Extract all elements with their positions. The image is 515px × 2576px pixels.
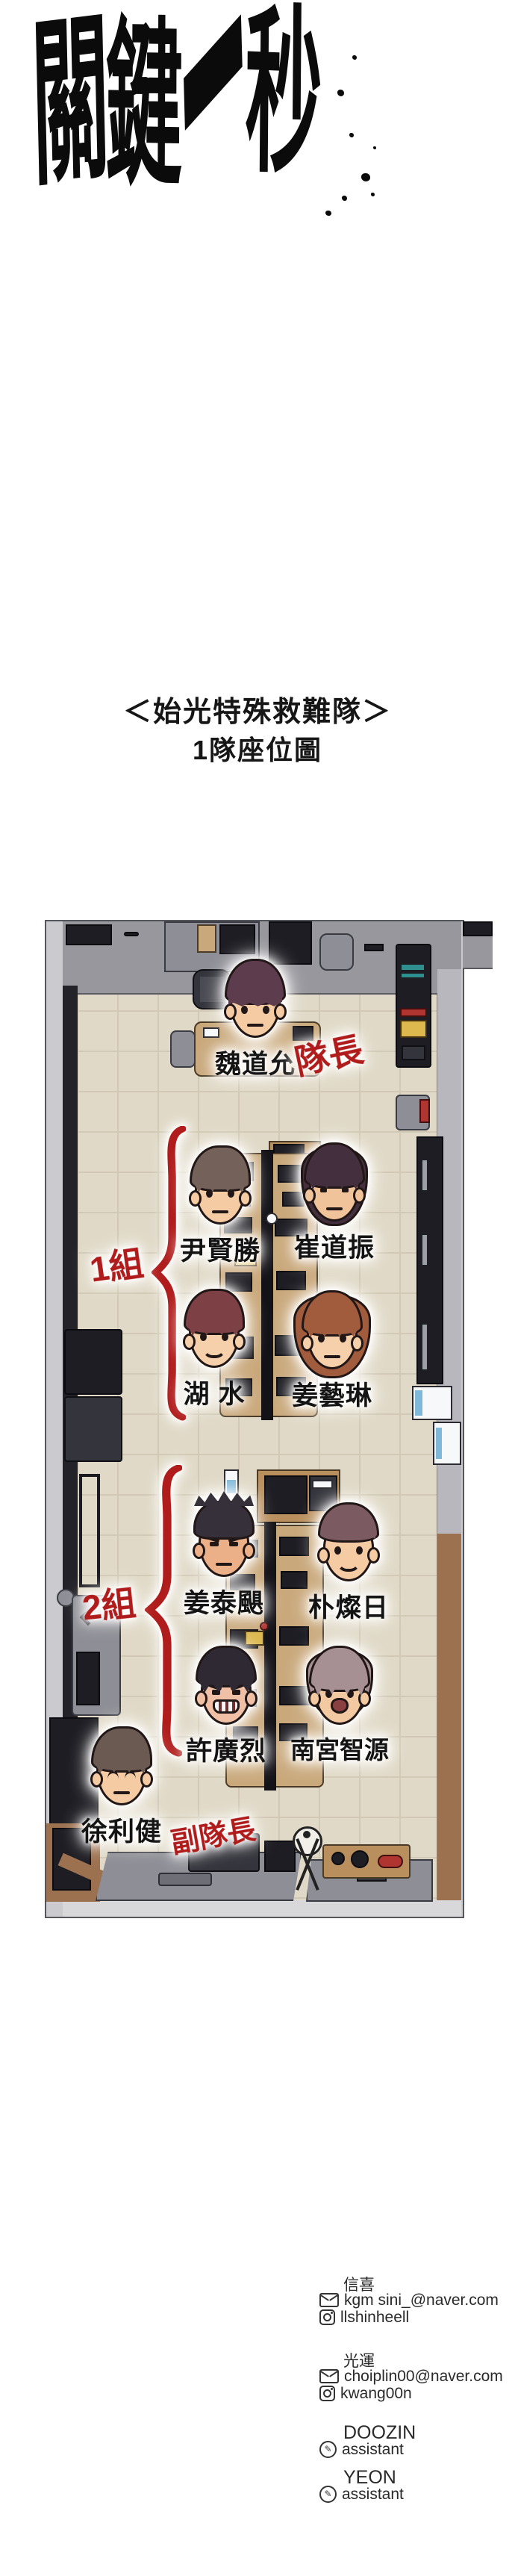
member-name: 湖 水 (162, 1373, 266, 1411)
credit-name: DOOZIN (343, 2422, 416, 2441)
ink-splatter (342, 196, 347, 201)
member-name: 姜藝琳 (280, 1375, 384, 1413)
device (264, 1841, 296, 1872)
credit-name: 光運 (343, 2349, 503, 2368)
binder-stack (219, 924, 255, 954)
member-group1-4: 姜藝琳 (280, 1290, 384, 1413)
credit-block: 信喜 kgm sini_@naver.com llshinheell (319, 2273, 499, 2326)
credit-text: kwang00n (340, 2385, 412, 2403)
wall-bottom (63, 1900, 461, 1917)
hair (193, 1501, 255, 1540)
logo-char: 鍵 (105, 7, 179, 206)
avatar (223, 959, 287, 1041)
avatar (302, 1142, 366, 1225)
member-name: 崔道振 (282, 1227, 387, 1265)
hair (225, 959, 286, 1005)
knob (351, 1850, 369, 1868)
locker-slot (422, 1160, 427, 1190)
series-logo: 關鍵一秒 (31, 0, 319, 204)
mannequin-head (303, 1831, 310, 1838)
member-vice-captain: 徐利健 (69, 1726, 174, 1849)
chair (170, 1030, 196, 1068)
ink-splatter (373, 146, 376, 149)
credit-line: kwang00n (319, 2385, 503, 2402)
shelf-item (400, 1020, 427, 1038)
indicator (260, 1622, 269, 1631)
member-name: 尹賢勝 (168, 1230, 272, 1268)
instagram-icon (319, 2309, 335, 2325)
battery-pack (245, 1631, 264, 1646)
cabinet (463, 921, 493, 936)
ink-splatter (361, 173, 370, 181)
member-group2-3: 許廣烈 (174, 1646, 278, 1768)
team-title: ＜始光特殊救難隊＞ (0, 688, 515, 729)
case-handle (419, 1099, 430, 1123)
hair (318, 1502, 379, 1543)
hair (190, 1145, 251, 1192)
logo-char: 秒 (245, 0, 319, 195)
shelf-item (400, 1008, 427, 1017)
switch (378, 1855, 403, 1868)
hair (304, 1142, 365, 1189)
credit-block: YEON assistant (319, 2467, 404, 2503)
box (197, 924, 216, 953)
ink-splatter (371, 193, 375, 196)
avatar (188, 1145, 252, 1228)
avatar (90, 1726, 154, 1808)
ink-splatter (325, 211, 331, 216)
avatar (192, 1498, 256, 1580)
credits: 信喜 kgm sini_@naver.com llshinheell 光運 ch… (319, 2273, 508, 2512)
bottle-label (227, 1480, 236, 1493)
member-group2-1: 姜泰颶 (172, 1498, 276, 1620)
member-group2-2: 朴燦日 (296, 1502, 401, 1625)
credit-line: assistant (319, 2441, 416, 2458)
ink-splatter (337, 90, 344, 96)
member-name: 姜泰颶 (172, 1582, 276, 1620)
chair (319, 933, 354, 971)
credit-text: assistant (342, 2486, 404, 2504)
ink-splatter (352, 55, 357, 60)
tray (364, 944, 384, 951)
rack-frame (79, 1474, 100, 1587)
member-name: 南宮智源 (284, 1730, 396, 1766)
locker-slot (422, 1325, 427, 1369)
locker-bank (416, 1136, 443, 1384)
pencil-icon (319, 2441, 337, 2458)
member-name: 徐利健 (69, 1811, 174, 1849)
member-group1-3: 湖 水 (162, 1289, 266, 1411)
seating-chart-title: 1隊座位圖 (0, 729, 515, 768)
hair (184, 1289, 245, 1335)
member-group1-2: 崔道振 (282, 1142, 387, 1265)
cabinet (64, 1329, 122, 1395)
credit-text: assistant (342, 2441, 404, 2459)
cabinet (66, 924, 112, 945)
credit-text: kgm sini_@naver.com (344, 2292, 499, 2309)
comic-page: 關鍵一秒 ＜始光特殊救難隊＞ 1隊座位圖 (0, 0, 515, 2576)
shelf-item (402, 974, 424, 977)
credit-name: YEON (343, 2467, 404, 2486)
locker-slot (422, 1235, 427, 1265)
member-name: 許廣烈 (174, 1730, 278, 1768)
email-icon (319, 2369, 339, 2383)
ink-splatter (349, 133, 354, 137)
shelf-item (402, 965, 424, 970)
hair (309, 1646, 370, 1692)
credit-name: 信喜 (343, 2273, 499, 2292)
member-group1-1: 尹賢勝 (168, 1145, 272, 1268)
credit-line: assistant (319, 2486, 404, 2503)
hair (196, 1646, 257, 1687)
member-name: 朴燦日 (296, 1587, 401, 1625)
avatar (300, 1290, 364, 1372)
shelf-item (402, 1045, 425, 1060)
credit-text: llshinheell (340, 2309, 409, 2327)
equipment (276, 1271, 306, 1290)
member-captain: 魏道允 (203, 959, 308, 1081)
fridge-label (415, 1390, 422, 1416)
hair (91, 1726, 152, 1773)
vent-grill (76, 1652, 100, 1705)
pencil-icon (319, 2486, 337, 2503)
credit-block: 光運 choiplin00@naver.com kwang00n (319, 2349, 503, 2402)
credit-text: choiplin00@naver.com (344, 2368, 503, 2386)
credit-block: DOOZIN assistant (319, 2422, 416, 2458)
credit-line: llshinheell (319, 2309, 499, 2326)
instagram-icon (319, 2386, 335, 2401)
avatar (308, 1646, 372, 1728)
knob (331, 1852, 345, 1865)
wall-right-lower (437, 1534, 461, 1902)
floor-vent (158, 1873, 212, 1886)
equipment (279, 1626, 309, 1646)
machine-panel (312, 1480, 333, 1489)
credit-line: choiplin00@naver.com (319, 2368, 503, 2385)
email-icon (319, 2293, 339, 2307)
avatar (316, 1502, 381, 1584)
logo-char: 關 (30, 0, 107, 207)
member-group2-4: 南宮智源 (284, 1646, 396, 1766)
avatar (194, 1646, 258, 1728)
handle (124, 932, 139, 936)
credit-line: kgm sini_@naver.com (319, 2292, 499, 2309)
group2-label: 2組 (80, 1575, 138, 1630)
group1-label: 1組 (87, 1236, 146, 1292)
logo-char: 一 (177, 0, 248, 384)
fridge-label (436, 1428, 442, 1459)
avatar (182, 1289, 246, 1371)
cabinet (64, 1396, 122, 1462)
